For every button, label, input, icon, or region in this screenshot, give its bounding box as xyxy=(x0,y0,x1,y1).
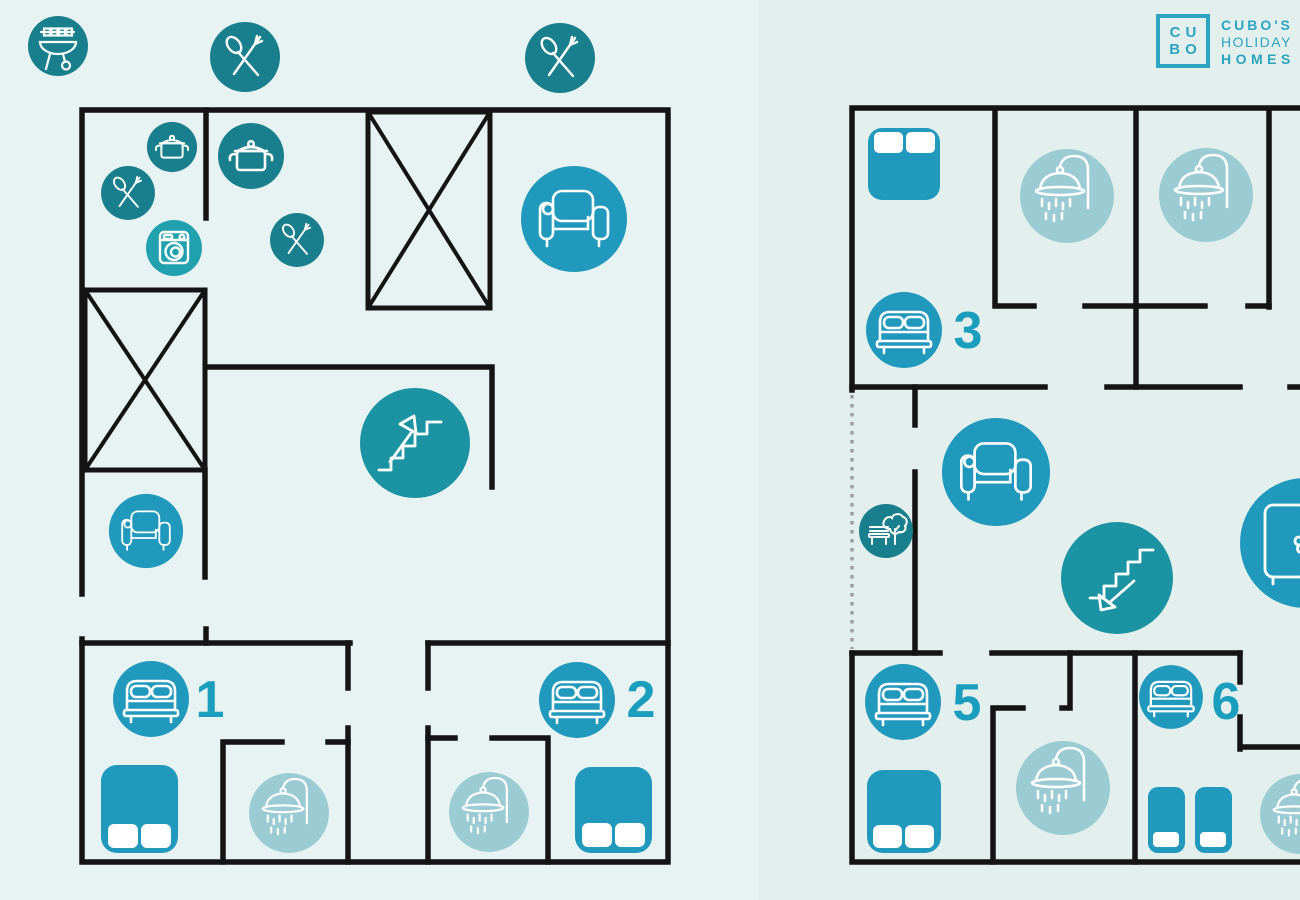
room-label-1: 1 xyxy=(180,673,240,727)
stairs-up-icon xyxy=(360,388,470,498)
ground-floor-plan xyxy=(28,16,668,862)
shower-icon xyxy=(249,773,329,853)
armchair-icon xyxy=(109,494,183,568)
shower-icon xyxy=(449,772,529,852)
brand-line3: HOMES xyxy=(1221,51,1295,68)
brand-line1: CUBO'S xyxy=(1221,17,1295,34)
bed-icon-room3 xyxy=(866,292,942,368)
logo-box-line2: BO xyxy=(1169,41,1202,58)
sofa-icon xyxy=(942,418,1050,526)
floorplan-drawing xyxy=(0,0,1300,900)
bed-icon-room1 xyxy=(113,661,189,737)
single-bed-room6 xyxy=(1195,787,1232,853)
single-bed-room6 xyxy=(1148,787,1185,853)
shower-icon xyxy=(1159,148,1253,242)
cooking-pot-icon xyxy=(147,122,197,172)
room-label-3: 3 xyxy=(938,304,998,358)
room-label-6: 6 xyxy=(1196,675,1256,729)
double-bed-room2 xyxy=(575,767,652,853)
bed-icon-room5 xyxy=(865,664,941,740)
dining-cutlery-icon xyxy=(270,213,324,267)
upper-floor-plan xyxy=(852,108,1300,862)
room-label-2: 2 xyxy=(611,673,671,727)
shower-icon xyxy=(1020,149,1114,243)
bed-icon-room6 xyxy=(1139,665,1203,729)
double-bed-room1 xyxy=(101,765,178,853)
double-bed-room5 xyxy=(867,770,941,853)
shower-icon xyxy=(1016,741,1110,835)
bed-icon-room2 xyxy=(539,662,615,738)
floorplan-poster: { "logo": { "box_line1": "CU", "box_line… xyxy=(0,0,1300,900)
dining-cutlery-icon xyxy=(525,23,595,93)
double-bed-room3 xyxy=(868,128,940,200)
window-box-top xyxy=(368,112,490,308)
cubo-logo-text: CUBO'S HOLIDAY HOMES xyxy=(1221,14,1295,68)
logo-box-line1: CU xyxy=(1170,24,1202,41)
brand-line2: HOLIDAY xyxy=(1221,34,1295,51)
sofa-icon xyxy=(521,166,627,272)
dining-cutlery-icon xyxy=(101,166,155,220)
window-box-left xyxy=(85,290,205,470)
dining-cutlery-icon xyxy=(210,22,280,92)
cooking-pot-icon xyxy=(218,123,284,189)
cubo-logo: CU BO CUBO'S HOLIDAY HOMES xyxy=(1156,14,1295,68)
bbq-grill-icon xyxy=(28,16,88,76)
garden-bench-tree-icon xyxy=(859,504,913,558)
shower-icon xyxy=(1260,774,1300,854)
stairs-down-icon xyxy=(1061,522,1173,634)
washing-machine-icon xyxy=(146,220,202,276)
wardrobe-icon xyxy=(1240,478,1300,608)
cubo-logo-box: CU BO xyxy=(1156,14,1210,68)
room-label-5: 5 xyxy=(937,676,997,730)
